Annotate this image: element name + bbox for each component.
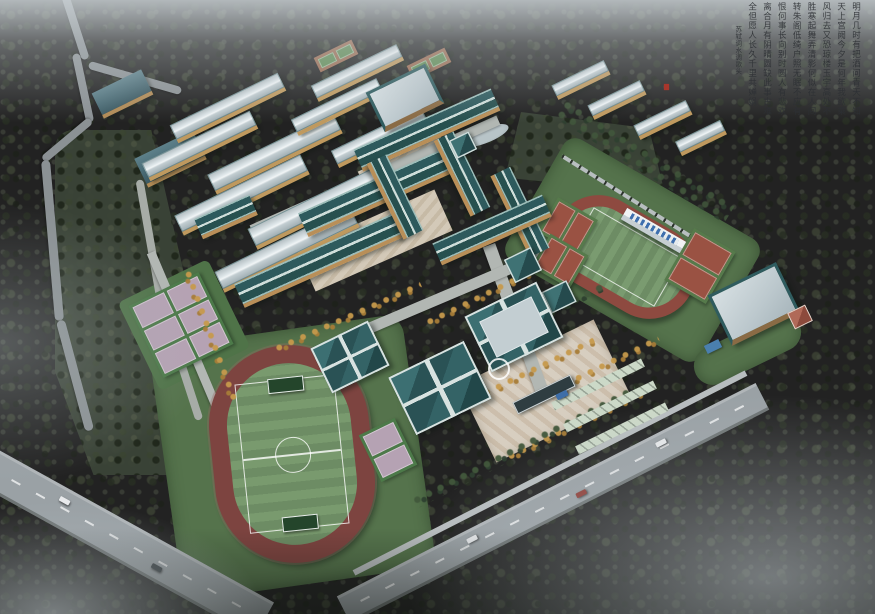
pitch-markings xyxy=(234,374,349,534)
car xyxy=(59,496,71,506)
calligraphy-column: 天上宫阙今夕是何年我欲乘 xyxy=(835,2,844,120)
calligraphy-column: 离合月有阴晴圆缺此事古难 xyxy=(761,2,770,120)
campus-aerial-rendering: 明月几时有把酒问青天不知 天上宫阙今夕是何年我欲乘 风归去又恐琼楼玉宇高处不 胜… xyxy=(0,0,875,614)
calligraphy-column: 恨何事长向别时圆人有悲欢 xyxy=(776,2,785,120)
calligraphy-column: 明月几时有把酒问青天不知 xyxy=(850,2,859,120)
calligraphy-attribution: 苏轼词水调歌头 xyxy=(734,2,741,120)
calligraphy-column: 风归去又恐琼楼玉宇高处不 xyxy=(820,2,829,120)
plaza-circle xyxy=(488,358,510,380)
roof-light-cap xyxy=(479,296,549,357)
calligraphy-seal xyxy=(664,84,669,90)
calligraphy-column: 转朱阁低绮户照无眠不应有 xyxy=(791,2,800,120)
calligraphy-column: 胜寒起舞弄清影何似在人间 xyxy=(806,2,815,120)
goal-canopy-south xyxy=(282,514,319,533)
calligraphy-inscription: 明月几时有把酒问青天不知 天上宫阙今夕是何年我欲乘 风归去又恐琼楼玉宇高处不 胜… xyxy=(728,2,865,120)
calligraphy-column: 全但愿人长久千里共婵娟 xyxy=(746,2,755,120)
